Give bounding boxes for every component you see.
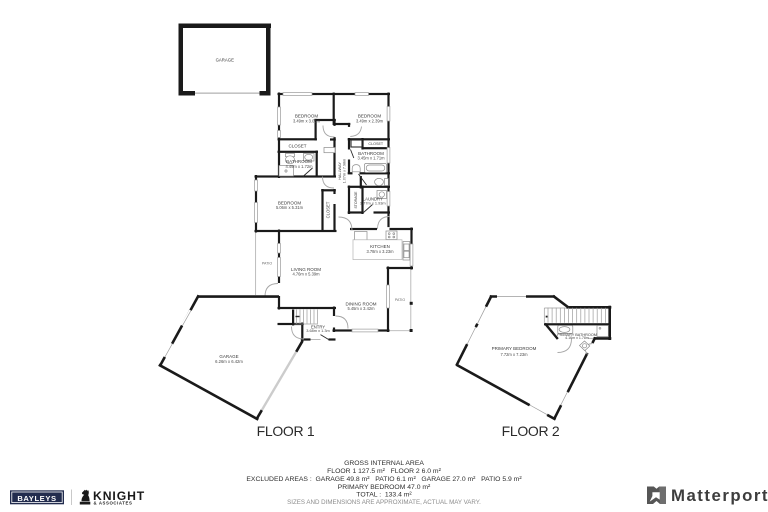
- svg-text:PRIMARY BEDROOM: PRIMARY BEDROOM: [492, 346, 537, 351]
- svg-text:PATIO: PATIO: [395, 298, 405, 302]
- svg-text:1.77m x 1.93m: 1.77m x 1.93m: [360, 200, 386, 205]
- svg-text:FLOOR 1 127.5 m² FLOOR 2 6.0: FLOOR 1 127.5 m² FLOOR 2 6.0 m²: [327, 468, 441, 475]
- svg-text:5.45m x 3.42m: 5.45m x 3.42m: [347, 306, 375, 311]
- svg-text:PATIO: PATIO: [262, 262, 272, 266]
- svg-text:STORAGE: STORAGE: [354, 191, 358, 209]
- svg-text:7.72m x 7.23m: 7.72m x 7.23m: [500, 352, 528, 357]
- svg-text:3.45m x 1.71m: 3.45m x 1.71m: [357, 156, 385, 161]
- svg-text:CLOSET: CLOSET: [326, 201, 331, 218]
- svg-text:CLOSET: CLOSET: [288, 144, 306, 149]
- svg-text:SIZES AND DIMENSIONS ARE APPRO: SIZES AND DIMENSIONS ARE APPROXIMATE, AC…: [287, 499, 481, 506]
- svg-text:GROSS INTERNAL AREA: GROSS INTERNAL AREA: [344, 460, 424, 467]
- svg-text:3.49m x 2.39m: 3.49m x 2.39m: [356, 119, 384, 124]
- svg-text:4.16m x 1.78m: 4.16m x 1.78m: [565, 336, 589, 340]
- svg-text:3.49m x 3.06m: 3.49m x 3.06m: [293, 119, 321, 124]
- svg-text:FLOOR 2: FLOOR 2: [502, 423, 560, 439]
- svg-text:3.78m x 3.23m: 3.78m x 3.23m: [366, 249, 394, 254]
- svg-text:4.76m x 5.39m: 4.76m x 5.39m: [292, 271, 320, 276]
- svg-text:TOTAL : 133.4 m²: TOTAL : 133.4 m²: [356, 492, 412, 499]
- svg-text:HALLWAY: HALLWAY: [337, 162, 342, 180]
- svg-text:EXCLUDED AREAS : GARAGE 49.8: EXCLUDED AREAS : GARAGE 49.8 m² PATIO 6.…: [246, 476, 522, 483]
- svg-text:GARAGE: GARAGE: [216, 58, 235, 63]
- svg-text:Matterport: Matterport: [671, 486, 768, 505]
- svg-text:6.26m x 6.42m: 6.26m x 6.42m: [215, 359, 243, 364]
- svg-text:PRIMARY BEDROOM 47.0 m²: PRIMARY BEDROOM 47.0 m²: [338, 484, 431, 491]
- svg-text:5.06m x 5.31m: 5.06m x 5.31m: [276, 205, 304, 210]
- svg-text:4.49m x 1.72m: 4.49m x 1.72m: [285, 164, 313, 169]
- svg-text:& ASSOCIATES: & ASSOCIATES: [94, 500, 133, 505]
- svg-text:3.68m x 1.3m: 3.68m x 1.3m: [306, 328, 330, 333]
- svg-text:FLOOR 1: FLOOR 1: [257, 423, 315, 439]
- svg-text:CLOSET: CLOSET: [368, 142, 384, 146]
- svg-text:1.07m x 7.98m: 1.07m x 7.98m: [342, 159, 346, 183]
- svg-text:BAYLEYS: BAYLEYS: [17, 494, 56, 503]
